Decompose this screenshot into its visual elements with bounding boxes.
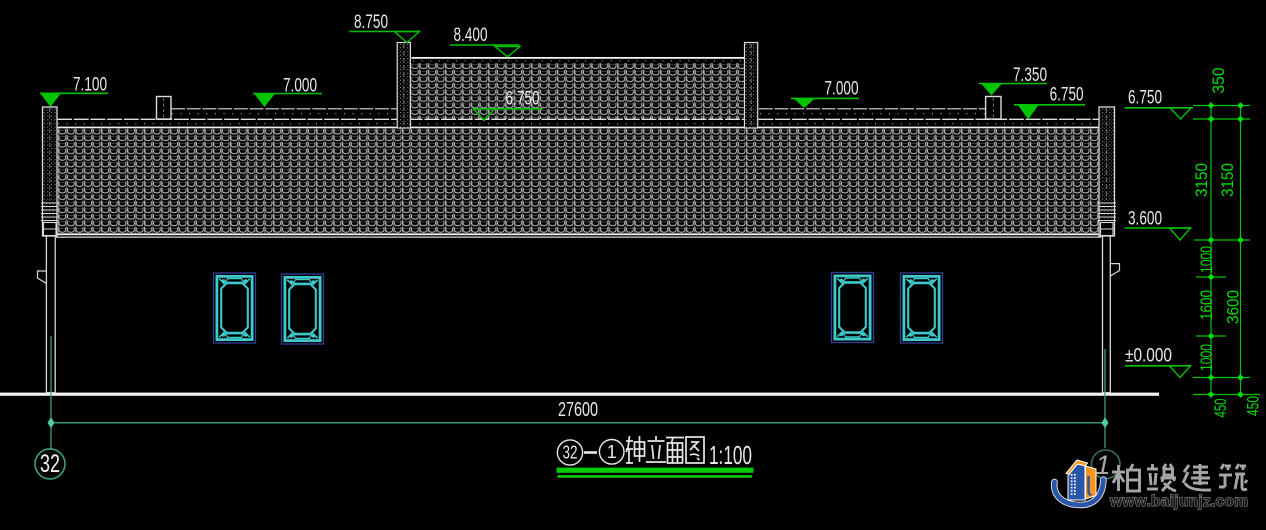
svg-text:3150: 3150	[1218, 163, 1237, 197]
svg-text:6.750: 6.750	[1128, 88, 1162, 109]
svg-text:1000: 1000	[1197, 246, 1216, 273]
svg-text:1600: 1600	[1197, 290, 1216, 320]
svg-text:6.750: 6.750	[1050, 85, 1084, 106]
svg-text:1000: 1000	[1197, 344, 1216, 371]
svg-text:1: 1	[1095, 450, 1110, 480]
svg-text:27600: 27600	[558, 399, 598, 421]
svg-text:8.750: 8.750	[354, 12, 388, 33]
svg-text:www.baijunjz.com: www.baijunjz.com	[1109, 493, 1248, 510]
svg-text:3600: 3600	[1224, 290, 1243, 324]
svg-text:3150: 3150	[1192, 163, 1211, 197]
svg-text:1:100: 1:100	[709, 440, 752, 470]
svg-text:±0.000: ±0.000	[1125, 346, 1172, 367]
svg-text:32: 32	[40, 450, 60, 478]
svg-text:7.000: 7.000	[825, 79, 859, 100]
svg-text:7.100: 7.100	[73, 75, 107, 96]
svg-text:350: 350	[1209, 68, 1228, 94]
svg-text:1: 1	[607, 442, 617, 462]
svg-text:8.400: 8.400	[454, 25, 488, 46]
svg-text:32: 32	[563, 443, 578, 463]
svg-text:450: 450	[1244, 396, 1263, 416]
svg-text:450: 450	[1211, 399, 1230, 418]
svg-text:6.750: 6.750	[506, 89, 540, 110]
svg-text:3.600: 3.600	[1128, 209, 1162, 230]
